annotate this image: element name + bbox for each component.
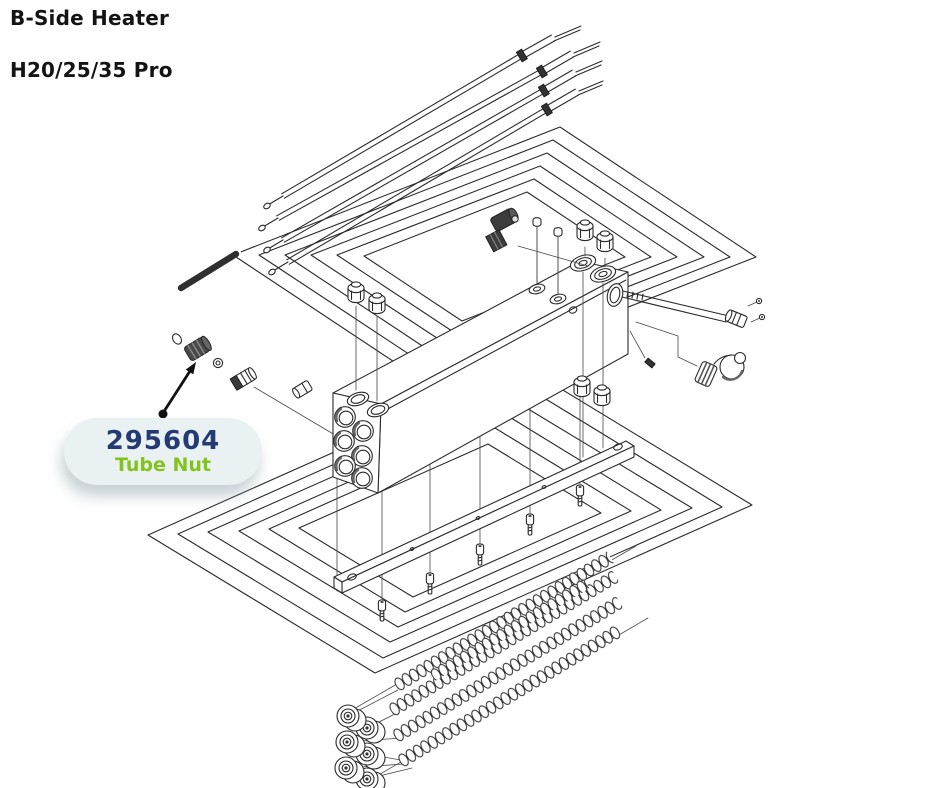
sensor-screws (748, 298, 765, 322)
tube-nut (183, 335, 213, 362)
thermocouple-tube (152, 253, 335, 435)
compression-fitting (230, 367, 258, 391)
elbow-fitting-top (479, 206, 528, 251)
part-callout: 295604 Tube Nut (64, 418, 262, 485)
sensor-fitting (724, 309, 748, 328)
plug-cap (291, 380, 312, 399)
tube-flanges (335, 705, 385, 788)
part-name: Tube Nut (115, 454, 211, 476)
finned-heater-tubes (346, 546, 648, 780)
elbow-fitting-right (694, 353, 745, 388)
heater-cartridges (258, 26, 603, 276)
right-tube (622, 291, 729, 366)
page: B-Side Heater H20/25/35 Pro (0, 0, 940, 788)
exploded-diagram (0, 0, 940, 788)
ferrule (213, 358, 222, 367)
callout-arrow (159, 362, 197, 419)
dowel-pin (630, 331, 655, 368)
drain-plugs (574, 376, 610, 406)
part-number: 295604 (106, 428, 221, 454)
